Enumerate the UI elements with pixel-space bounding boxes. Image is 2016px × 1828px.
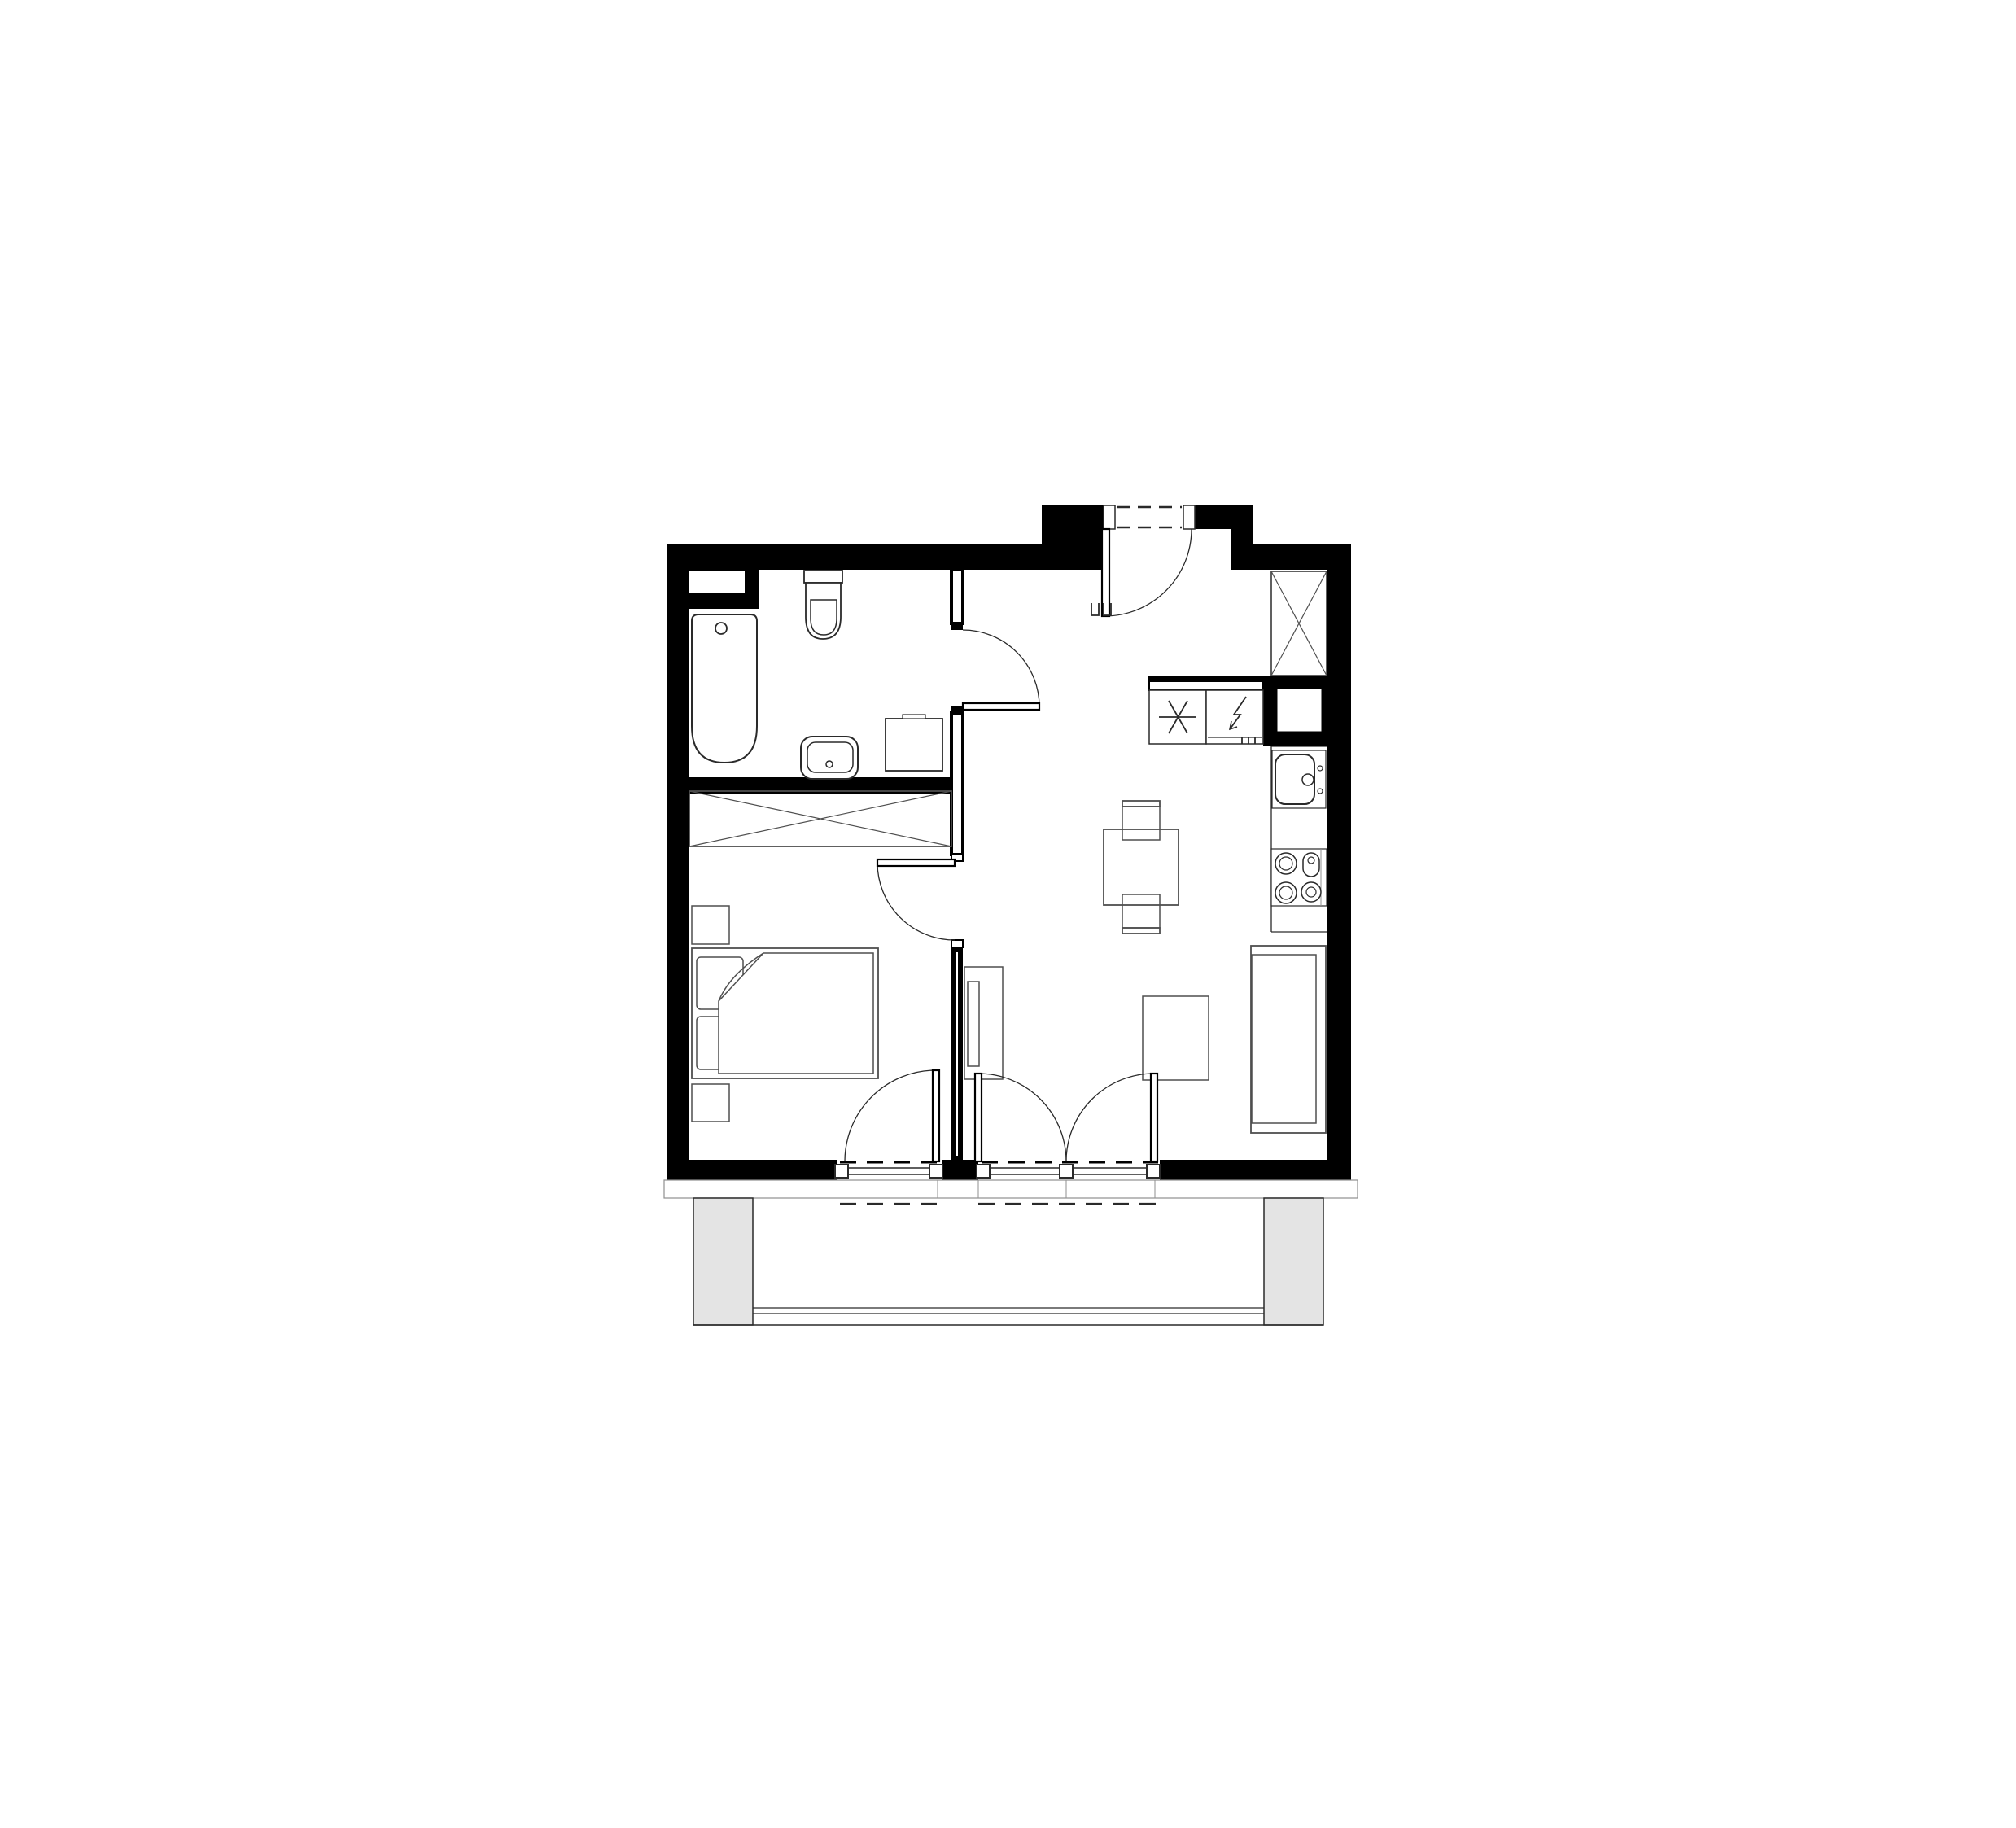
bathtub-niche-pocket — [689, 571, 745, 593]
utility-shaft-duct — [1276, 688, 1323, 733]
bathtub — [692, 614, 757, 763]
tv-cabinet — [964, 967, 1003, 1079]
entry-door-frame-right — [1183, 505, 1195, 529]
living-balcony-door-left-arc — [978, 1074, 1066, 1161]
partition-bathroom-jamb — [951, 570, 963, 623]
bedroom-door-arc — [877, 863, 955, 940]
balcony-pier-left — [693, 1198, 753, 1325]
kitchen-counter-edge-top — [1149, 677, 1263, 682]
coffee-table — [1143, 996, 1209, 1080]
bedroom-door-leaf — [877, 859, 955, 866]
electrical-cabinet — [1206, 690, 1263, 744]
bottom-wall-right — [1160, 1160, 1351, 1180]
entry-nook-left-jamb — [1042, 505, 1104, 544]
entry-nook-right-step — [1231, 529, 1253, 570]
nightstand-south — [692, 1084, 729, 1122]
partition-bedroom-cap — [951, 940, 963, 947]
sofa — [1251, 946, 1326, 1133]
washing-machine-panel — [903, 715, 925, 719]
window-mullion-2 — [929, 1165, 942, 1178]
entry-door-arc — [1105, 529, 1192, 616]
balcony-pier-right — [1264, 1198, 1323, 1325]
bottom-wall-center-pier — [942, 1160, 978, 1180]
dining-chair-north — [1122, 807, 1160, 840]
kitchen-faucet — [1302, 774, 1314, 785]
sofa-seat — [1252, 955, 1316, 1123]
nightstand-north — [692, 906, 729, 944]
window-mullion-3 — [977, 1165, 990, 1178]
window-mullion-4 — [1060, 1165, 1073, 1178]
partition-hall — [951, 713, 963, 855]
entry-door-frame-left — [1104, 505, 1115, 529]
toilet-tank — [804, 571, 842, 583]
page — [0, 0, 2016, 1828]
living-balcony-door-left-leaf — [975, 1074, 982, 1161]
dining-chair-south — [1122, 894, 1160, 928]
kitchen-sink-unit — [1272, 750, 1326, 808]
bathroom-door-arc — [963, 630, 1039, 706]
entry-door-hinge-left — [1091, 603, 1099, 615]
dining-chair-south-back — [1122, 928, 1160, 934]
bedroom-balcony-door-leaf — [933, 1070, 939, 1161]
window-mullion-1 — [835, 1165, 848, 1178]
living-balcony-door-right-leaf — [1151, 1074, 1157, 1161]
tv — [968, 982, 979, 1066]
entry-nook-right-jamb — [1195, 505, 1253, 529]
dining-chair-north-back — [1122, 801, 1160, 807]
washing-machine — [886, 719, 942, 771]
living-balcony-door-right-arc — [1066, 1074, 1154, 1161]
bedroom-balcony-door-arc — [845, 1070, 936, 1161]
entry-door-leaf — [1102, 529, 1109, 616]
bathroom-door-leaf — [963, 703, 1039, 710]
left-wall — [667, 544, 689, 1180]
partition-bathroom-jamb-cap — [951, 623, 963, 630]
top-wall-left — [667, 544, 1104, 570]
floor-plan — [0, 0, 2016, 1828]
bedroom-window — [837, 1168, 942, 1174]
facade-slab — [664, 1180, 1358, 1198]
bottom-wall-left — [667, 1160, 837, 1180]
window-mullion-5 — [1147, 1165, 1160, 1178]
right-wall — [1327, 544, 1351, 1180]
dining-table — [1104, 829, 1179, 905]
